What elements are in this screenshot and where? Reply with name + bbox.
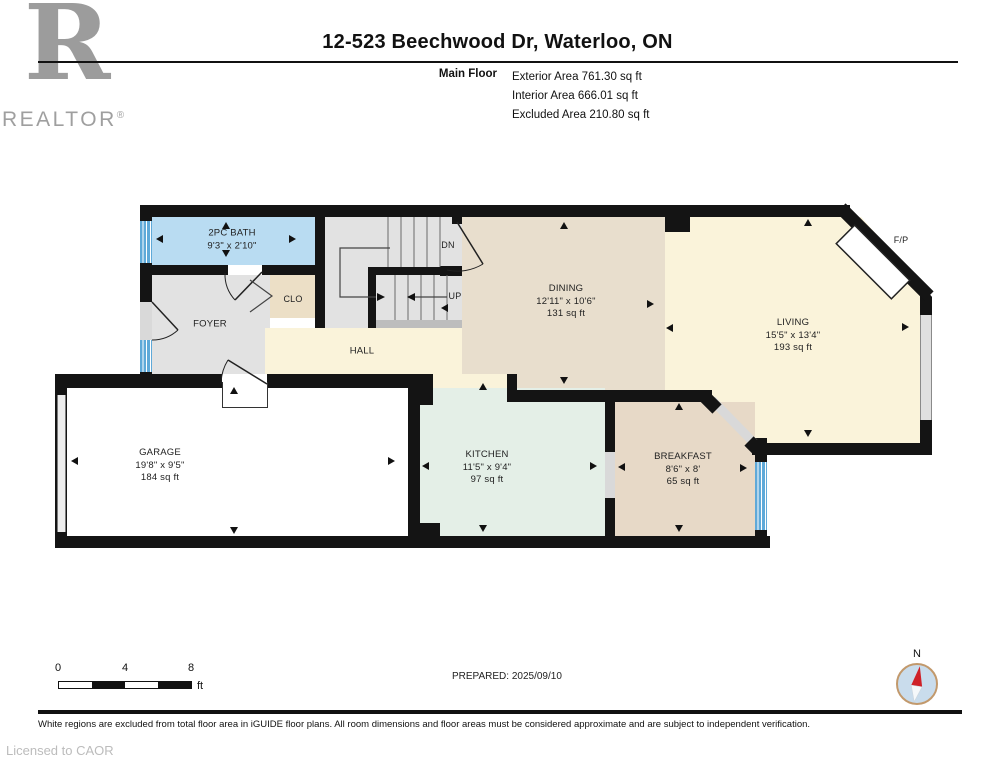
wall-kitchen-breakfast-a (605, 402, 615, 452)
direction-arrow (666, 324, 673, 332)
realtor-brand-text: REALTOR (2, 108, 117, 131)
wall-hall-garage-1 (55, 374, 222, 388)
floor-plan-page: R REALTOR® 12-523 Beechwood Dr, Waterloo… (0, 0, 995, 768)
floor-name-label: Main Floor (380, 68, 497, 80)
prepared-date: PREPARED: 2025/09/10 (452, 671, 562, 682)
garage-door (57, 395, 66, 532)
page-title: 12-523 Beechwood Dr, Waterloo, ON (0, 31, 995, 54)
scale-bar (58, 681, 192, 689)
fireplace-label: F/P (894, 235, 909, 247)
floor-area-stats: Exterior Area 761.30 sq ft Interior Area… (512, 68, 649, 125)
scale-tick-8: 8 (184, 662, 198, 674)
wall-dining-kitchen (517, 390, 712, 402)
garage-name: GARAGE (135, 447, 184, 460)
wall-living-bottom (752, 443, 932, 455)
direction-arrow (740, 464, 747, 472)
disclaimer-text: White regions are excluded from total fl… (38, 719, 968, 730)
direction-arrow (71, 457, 78, 465)
wall-top (140, 205, 850, 217)
wall-stairs-mid-v (368, 267, 376, 328)
scale-segment (125, 682, 158, 688)
scale-tick-4: 4 (118, 662, 132, 674)
kitchen-floor (420, 388, 605, 536)
dining-name: DINING (536, 283, 595, 296)
direction-arrow (618, 463, 625, 471)
breakfast-area: 65 sq ft (654, 476, 712, 489)
wall-kitchen-corner (420, 388, 433, 405)
living-label: LIVING 15'5" x 13'4" 193 sq ft (766, 317, 821, 355)
front-door-opening (140, 302, 152, 340)
compass-north-label: N (913, 648, 921, 660)
direction-arrow (675, 403, 683, 410)
direction-arrow (804, 219, 812, 226)
bath-dims: 9'3" x 2'10" (207, 240, 256, 253)
kitchen-area: 97 sq ft (463, 474, 512, 487)
direction-arrow (422, 462, 429, 470)
direction-arrow (902, 323, 909, 331)
garage-area: 184 sq ft (135, 472, 184, 485)
compass-icon: N (889, 645, 945, 709)
direction-arrow (222, 250, 230, 257)
direction-arrow (230, 387, 238, 394)
kitchen-name: KITCHEN (463, 449, 512, 462)
wall-bottom (55, 536, 770, 548)
direction-arrow (289, 235, 296, 243)
scale-tick-0: 0 (51, 662, 65, 674)
wall-kitchen-notch (420, 523, 440, 536)
kitchen-breakfast-opening (605, 452, 615, 498)
living-patio-window (920, 315, 932, 420)
hall-label: HALL (350, 346, 375, 359)
living-dims: 15'5" x 13'4" (766, 330, 821, 343)
stairs-up-label: UP (449, 291, 462, 303)
direction-arrow (230, 527, 238, 534)
direction-arrow (479, 383, 487, 390)
garage-dims: 19'8" x 9'5" (135, 460, 184, 473)
direction-arrow (388, 457, 395, 465)
footer-divider (38, 710, 962, 714)
scale-segment (59, 682, 92, 688)
living-area: 193 sq ft (766, 342, 821, 355)
registered-mark: ® (117, 110, 127, 121)
direction-arrow (804, 430, 812, 437)
wall-left-a (140, 205, 152, 221)
scale-unit-label: ft (197, 680, 203, 692)
direction-arrow (560, 222, 568, 229)
foyer-label: FOYER (193, 319, 227, 332)
scale-segment (158, 682, 191, 688)
wall-living-right-a (920, 294, 932, 315)
direction-arrow (441, 304, 448, 312)
wall-kitchen-breakfast-b (605, 498, 615, 536)
wall-dining-living-stub (665, 205, 690, 232)
stairs-landing (376, 320, 462, 328)
stairs-dn-label: DN (441, 240, 454, 252)
dining-dims: 12'11" x 10'6" (536, 296, 595, 309)
scale-segment (92, 682, 125, 688)
dining-area: 131 sq ft (536, 308, 595, 321)
wall-living-right-b (920, 420, 932, 455)
interior-area-stat: Interior Area 666.01 sq ft (512, 87, 649, 106)
wall-stairs-right-top (452, 217, 462, 224)
bath-label: 2PC BATH 9'3" x 2'10" (207, 227, 256, 252)
excluded-area-stat: Excluded Area 210.80 sq ft (512, 106, 649, 125)
direction-arrow (647, 300, 654, 308)
garage-entry-step (222, 382, 268, 408)
bath-window (140, 221, 152, 263)
bath-name: 2PC BATH (207, 227, 256, 240)
license-text: Licensed to CAOR (6, 743, 114, 758)
breakfast-name: BREAKFAST (654, 451, 712, 464)
garage-floor (67, 388, 408, 536)
kitchen-label: KITCHEN 11'5" x 9'4" 97 sq ft (463, 449, 512, 487)
realtor-logo-wordmark: REALTOR® (2, 108, 127, 132)
direction-arrow (675, 525, 683, 532)
title-divider (38, 61, 958, 63)
breakfast-label: BREAKFAST 8'6" x 8' 65 sq ft (654, 451, 712, 489)
direction-arrow (590, 462, 597, 470)
direction-arrow (479, 525, 487, 532)
closet-label: CLO (283, 294, 302, 306)
wall-stub-s1 (507, 374, 517, 402)
foyer-window (140, 340, 152, 372)
exterior-area-stat: Exterior Area 761.30 sq ft (512, 68, 649, 87)
living-name: LIVING (766, 317, 821, 330)
direction-arrow (560, 377, 568, 384)
breakfast-dims: 8'6" x 8' (654, 464, 712, 477)
wall-bath-bottom-1 (140, 265, 228, 275)
floor-plan: 2PC BATH 9'3" x 2'10" FOYER CLO HALL DN … (55, 200, 960, 565)
wall-breakfast-right-b (755, 530, 767, 548)
dining-label: DINING 12'11" x 10'6" 131 sq ft (536, 283, 595, 321)
breakfast-window (755, 462, 767, 530)
direction-arrow (156, 235, 163, 243)
wall-garage-kitchen (408, 374, 420, 548)
wall-bath-stairs (315, 217, 325, 328)
direction-arrow (222, 222, 230, 229)
kitchen-dims: 11'5" x 9'4" (463, 462, 512, 475)
garage-label: GARAGE 19'8" x 9'5" 184 sq ft (135, 447, 184, 485)
wall-dn-door-stub (440, 266, 462, 276)
